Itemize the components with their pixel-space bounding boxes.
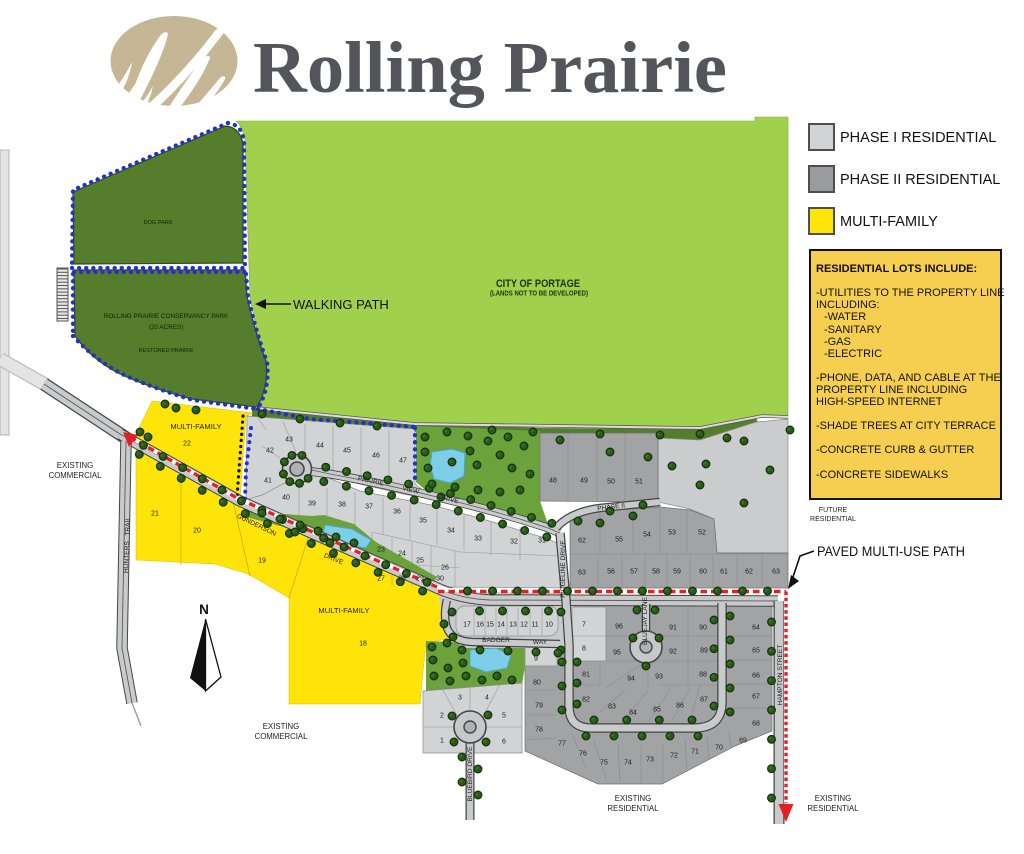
svg-text:57: 57 xyxy=(630,568,638,575)
svg-text:63: 63 xyxy=(578,569,586,576)
svg-text:81: 81 xyxy=(582,671,590,678)
svg-text:RESIDENTIAL: RESIDENTIAL xyxy=(810,516,856,523)
svg-text:28: 28 xyxy=(398,575,406,582)
svg-text:MULTI-FAMILY: MULTI-FAMILY xyxy=(170,422,221,431)
svg-text:61: 61 xyxy=(720,568,728,575)
svg-text:7: 7 xyxy=(582,621,586,628)
svg-text:EXISTING: EXISTING xyxy=(263,722,299,731)
svg-text:21: 21 xyxy=(151,510,159,517)
svg-text:WALKING PATH: WALKING PATH xyxy=(293,297,389,312)
svg-text:BLUEBIRD DRIVE: BLUEBIRD DRIVE xyxy=(467,746,474,802)
svg-text:-UTILITIES TO THE PROPERTY LIN: -UTILITIES TO THE PROPERTY LINE xyxy=(816,287,1004,299)
svg-text:-SHADE TREES AT CITY TERRACE: -SHADE TREES AT CITY TERRACE xyxy=(816,420,996,432)
svg-text:-CONCRETE SIDEWALKS: -CONCRETE SIDEWALKS xyxy=(816,469,948,481)
svg-text:63: 63 xyxy=(772,568,780,575)
svg-text:96: 96 xyxy=(615,623,623,630)
svg-text:46: 46 xyxy=(372,452,380,459)
svg-text:9: 9 xyxy=(534,655,538,662)
svg-text:33: 33 xyxy=(474,535,482,542)
svg-text:85: 85 xyxy=(653,706,661,713)
svg-text:54: 54 xyxy=(643,531,651,538)
svg-text:80: 80 xyxy=(533,679,541,686)
svg-text:19: 19 xyxy=(258,557,266,564)
svg-text:25: 25 xyxy=(416,557,424,564)
svg-text:91: 91 xyxy=(669,624,677,631)
svg-text:34: 34 xyxy=(447,527,455,534)
svg-text:WAY: WAY xyxy=(533,639,548,646)
svg-text:23: 23 xyxy=(377,546,385,553)
svg-text:RESIDENTIAL: RESIDENTIAL xyxy=(607,804,659,813)
svg-text:71: 71 xyxy=(691,748,699,755)
svg-text:66: 66 xyxy=(752,672,760,679)
svg-text:12: 12 xyxy=(520,621,528,628)
svg-text:67: 67 xyxy=(752,693,760,700)
svg-text:74: 74 xyxy=(624,759,632,766)
svg-text:PHASE I RESIDENTIAL: PHASE I RESIDENTIAL xyxy=(840,130,996,146)
svg-text:HAMPTON STREET: HAMPTON STREET xyxy=(777,645,784,706)
svg-text:-GAS: -GAS xyxy=(824,336,851,348)
svg-text:EXISTING: EXISTING xyxy=(615,794,651,803)
svg-text:-SANITARY: -SANITARY xyxy=(824,324,882,336)
svg-text:BLUEJAY LANE: BLUEJAY LANE xyxy=(642,597,649,645)
svg-text:55: 55 xyxy=(615,536,623,543)
svg-text:Rolling Prairie: Rolling Prairie xyxy=(253,27,727,108)
svg-text:50: 50 xyxy=(607,478,615,485)
svg-text:41: 41 xyxy=(264,477,272,484)
svg-text:65: 65 xyxy=(752,647,760,654)
svg-text:13: 13 xyxy=(509,621,517,628)
svg-text:70: 70 xyxy=(715,744,723,751)
svg-text:77: 77 xyxy=(558,740,566,747)
svg-text:76: 76 xyxy=(579,750,587,757)
svg-text:FUTURE: FUTURE xyxy=(819,507,848,514)
svg-text:(20 ACRES): (20 ACRES) xyxy=(149,324,184,331)
svg-text:95: 95 xyxy=(613,649,621,656)
svg-text:38: 38 xyxy=(338,501,346,508)
svg-text:N: N xyxy=(199,602,209,617)
svg-text:62: 62 xyxy=(745,568,753,575)
svg-text:MULTI-FAMILY: MULTI-FAMILY xyxy=(318,606,369,615)
svg-text:-CONCRETE CURB & GUTTER: -CONCRETE CURB & GUTTER xyxy=(816,444,974,456)
svg-text:44: 44 xyxy=(316,442,324,449)
svg-text:COMMERCIAL: COMMERCIAL xyxy=(49,471,103,480)
svg-text:DOG PARK: DOG PARK xyxy=(143,220,172,226)
svg-text:47: 47 xyxy=(399,457,407,464)
svg-text:51: 51 xyxy=(635,478,643,485)
svg-text:78: 78 xyxy=(535,726,543,733)
svg-text:72: 72 xyxy=(670,752,678,759)
svg-text:2: 2 xyxy=(440,712,444,719)
svg-text:EXISTING: EXISTING xyxy=(57,461,93,470)
svg-text:(LANDS NOT TO BE DEVELOPED): (LANDS NOT TO BE DEVELOPED) xyxy=(490,291,588,298)
svg-text:HIGH-SPEED INTERNET: HIGH-SPEED INTERNET xyxy=(816,396,943,408)
svg-text:45: 45 xyxy=(343,447,351,454)
svg-text:59: 59 xyxy=(673,568,681,575)
svg-text:36: 36 xyxy=(393,508,401,515)
svg-text:18: 18 xyxy=(359,640,367,647)
svg-text:39: 39 xyxy=(308,500,316,507)
svg-text:-WATER: -WATER xyxy=(824,311,866,323)
svg-text:4: 4 xyxy=(485,694,489,701)
svg-text:75: 75 xyxy=(600,759,608,766)
svg-text:BADGER: BADGER xyxy=(482,637,510,644)
svg-text:86: 86 xyxy=(676,702,684,709)
svg-text:29: 29 xyxy=(416,575,424,582)
svg-text:CITY OF PORTAGE: CITY OF PORTAGE xyxy=(496,278,580,290)
svg-text:60: 60 xyxy=(699,568,707,575)
svg-text:35: 35 xyxy=(419,517,427,524)
svg-text:52: 52 xyxy=(698,529,706,536)
svg-text:14: 14 xyxy=(497,621,505,628)
svg-text:64: 64 xyxy=(752,624,760,631)
svg-text:1: 1 xyxy=(440,737,444,744)
svg-text:42: 42 xyxy=(266,447,274,454)
svg-text:73: 73 xyxy=(646,756,654,763)
svg-text:PROPERTY LINE INCLUDING: PROPERTY LINE INCLUDING xyxy=(816,384,967,396)
svg-text:40: 40 xyxy=(282,494,290,501)
svg-text:53: 53 xyxy=(668,529,676,536)
svg-text:RESIDENTIAL LOTS INCLUDE:: RESIDENTIAL LOTS INCLUDE: xyxy=(816,263,977,275)
svg-text:87: 87 xyxy=(700,696,708,703)
svg-text:27: 27 xyxy=(377,575,385,582)
svg-text:3: 3 xyxy=(458,694,462,701)
svg-text:22: 22 xyxy=(183,440,191,447)
svg-text:37: 37 xyxy=(365,503,373,510)
svg-text:48: 48 xyxy=(549,477,557,484)
svg-text:49: 49 xyxy=(580,477,588,484)
svg-text:88: 88 xyxy=(699,671,707,678)
svg-text:ROLLING PRAIRIE CONSERVANCY PA: ROLLING PRAIRIE CONSERVANCY PARK xyxy=(104,313,229,320)
svg-text:30: 30 xyxy=(436,575,444,582)
svg-text:84: 84 xyxy=(629,709,637,716)
svg-text:11: 11 xyxy=(531,621,538,628)
svg-text:-ELECTRIC: -ELECTRIC xyxy=(824,348,882,360)
svg-text:82: 82 xyxy=(582,696,590,703)
svg-text:PAVED MULTI-USE PATH: PAVED MULTI-USE PATH xyxy=(817,544,965,559)
svg-text:INCLUDING:: INCLUDING: xyxy=(816,299,880,311)
svg-text:94: 94 xyxy=(627,675,635,682)
svg-text:6: 6 xyxy=(502,738,506,745)
svg-text:COMMERCIAL: COMMERCIAL xyxy=(255,732,309,741)
svg-text:RIDGELINE DRIVE: RIDGELINE DRIVE xyxy=(560,540,567,598)
svg-text:15: 15 xyxy=(486,621,494,628)
svg-text:93: 93 xyxy=(655,673,663,680)
svg-text:RESTORED PRAIRIE: RESTORED PRAIRIE xyxy=(139,348,194,354)
svg-text:10: 10 xyxy=(545,621,553,628)
svg-text:89: 89 xyxy=(700,647,708,654)
svg-text:68: 68 xyxy=(752,720,760,727)
svg-text:43: 43 xyxy=(285,436,293,443)
svg-text:90: 90 xyxy=(699,624,707,631)
svg-text:MULTI-FAMILY: MULTI-FAMILY xyxy=(840,214,938,230)
svg-text:83: 83 xyxy=(608,703,616,710)
svg-text:69: 69 xyxy=(739,737,747,744)
svg-text:24: 24 xyxy=(398,550,406,557)
svg-text:20: 20 xyxy=(193,527,201,534)
svg-text:92: 92 xyxy=(669,648,677,655)
svg-text:26: 26 xyxy=(441,564,449,571)
svg-text:62: 62 xyxy=(578,537,586,544)
svg-text:16: 16 xyxy=(476,621,484,628)
svg-text:56: 56 xyxy=(607,568,615,575)
svg-text:PHASE II RESIDENTIAL: PHASE II RESIDENTIAL xyxy=(840,172,1000,188)
svg-text:8: 8 xyxy=(582,645,586,652)
svg-text:32: 32 xyxy=(510,538,518,545)
svg-text:EXISTING: EXISTING xyxy=(815,794,851,803)
svg-text:31: 31 xyxy=(538,537,546,544)
svg-text:17: 17 xyxy=(463,621,471,628)
svg-text:58: 58 xyxy=(652,568,660,575)
svg-text:RESIDENTIAL: RESIDENTIAL xyxy=(807,804,859,813)
svg-text:79: 79 xyxy=(535,702,543,709)
svg-text:-PHONE, DATA, AND CABLE AT THE: -PHONE, DATA, AND CABLE AT THE xyxy=(816,372,1001,384)
svg-text:5: 5 xyxy=(502,712,506,719)
